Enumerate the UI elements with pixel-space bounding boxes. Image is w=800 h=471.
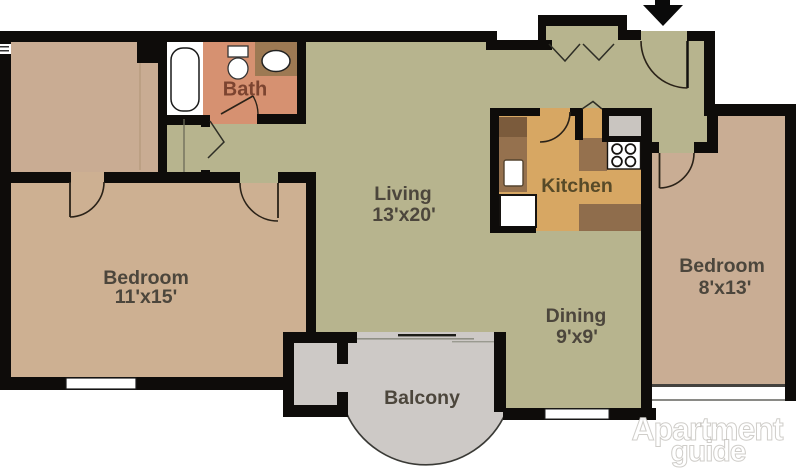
svg-text:13'x20': 13'x20' [372,204,436,226]
svg-text:Bedroom: Bedroom [679,255,765,277]
svg-text:Kitchen: Kitchen [541,175,613,197]
svg-text:Bath: Bath [223,79,267,101]
svg-text:guide: guide [671,435,746,468]
svg-text:11'x15': 11'x15' [115,286,177,308]
svg-text:Balcony: Balcony [384,387,460,409]
svg-text:9'x9': 9'x9' [556,326,598,348]
svg-text:Living: Living [374,183,431,205]
svg-text:8'x13': 8'x13' [699,277,752,299]
svg-text:Dining: Dining [546,305,607,327]
